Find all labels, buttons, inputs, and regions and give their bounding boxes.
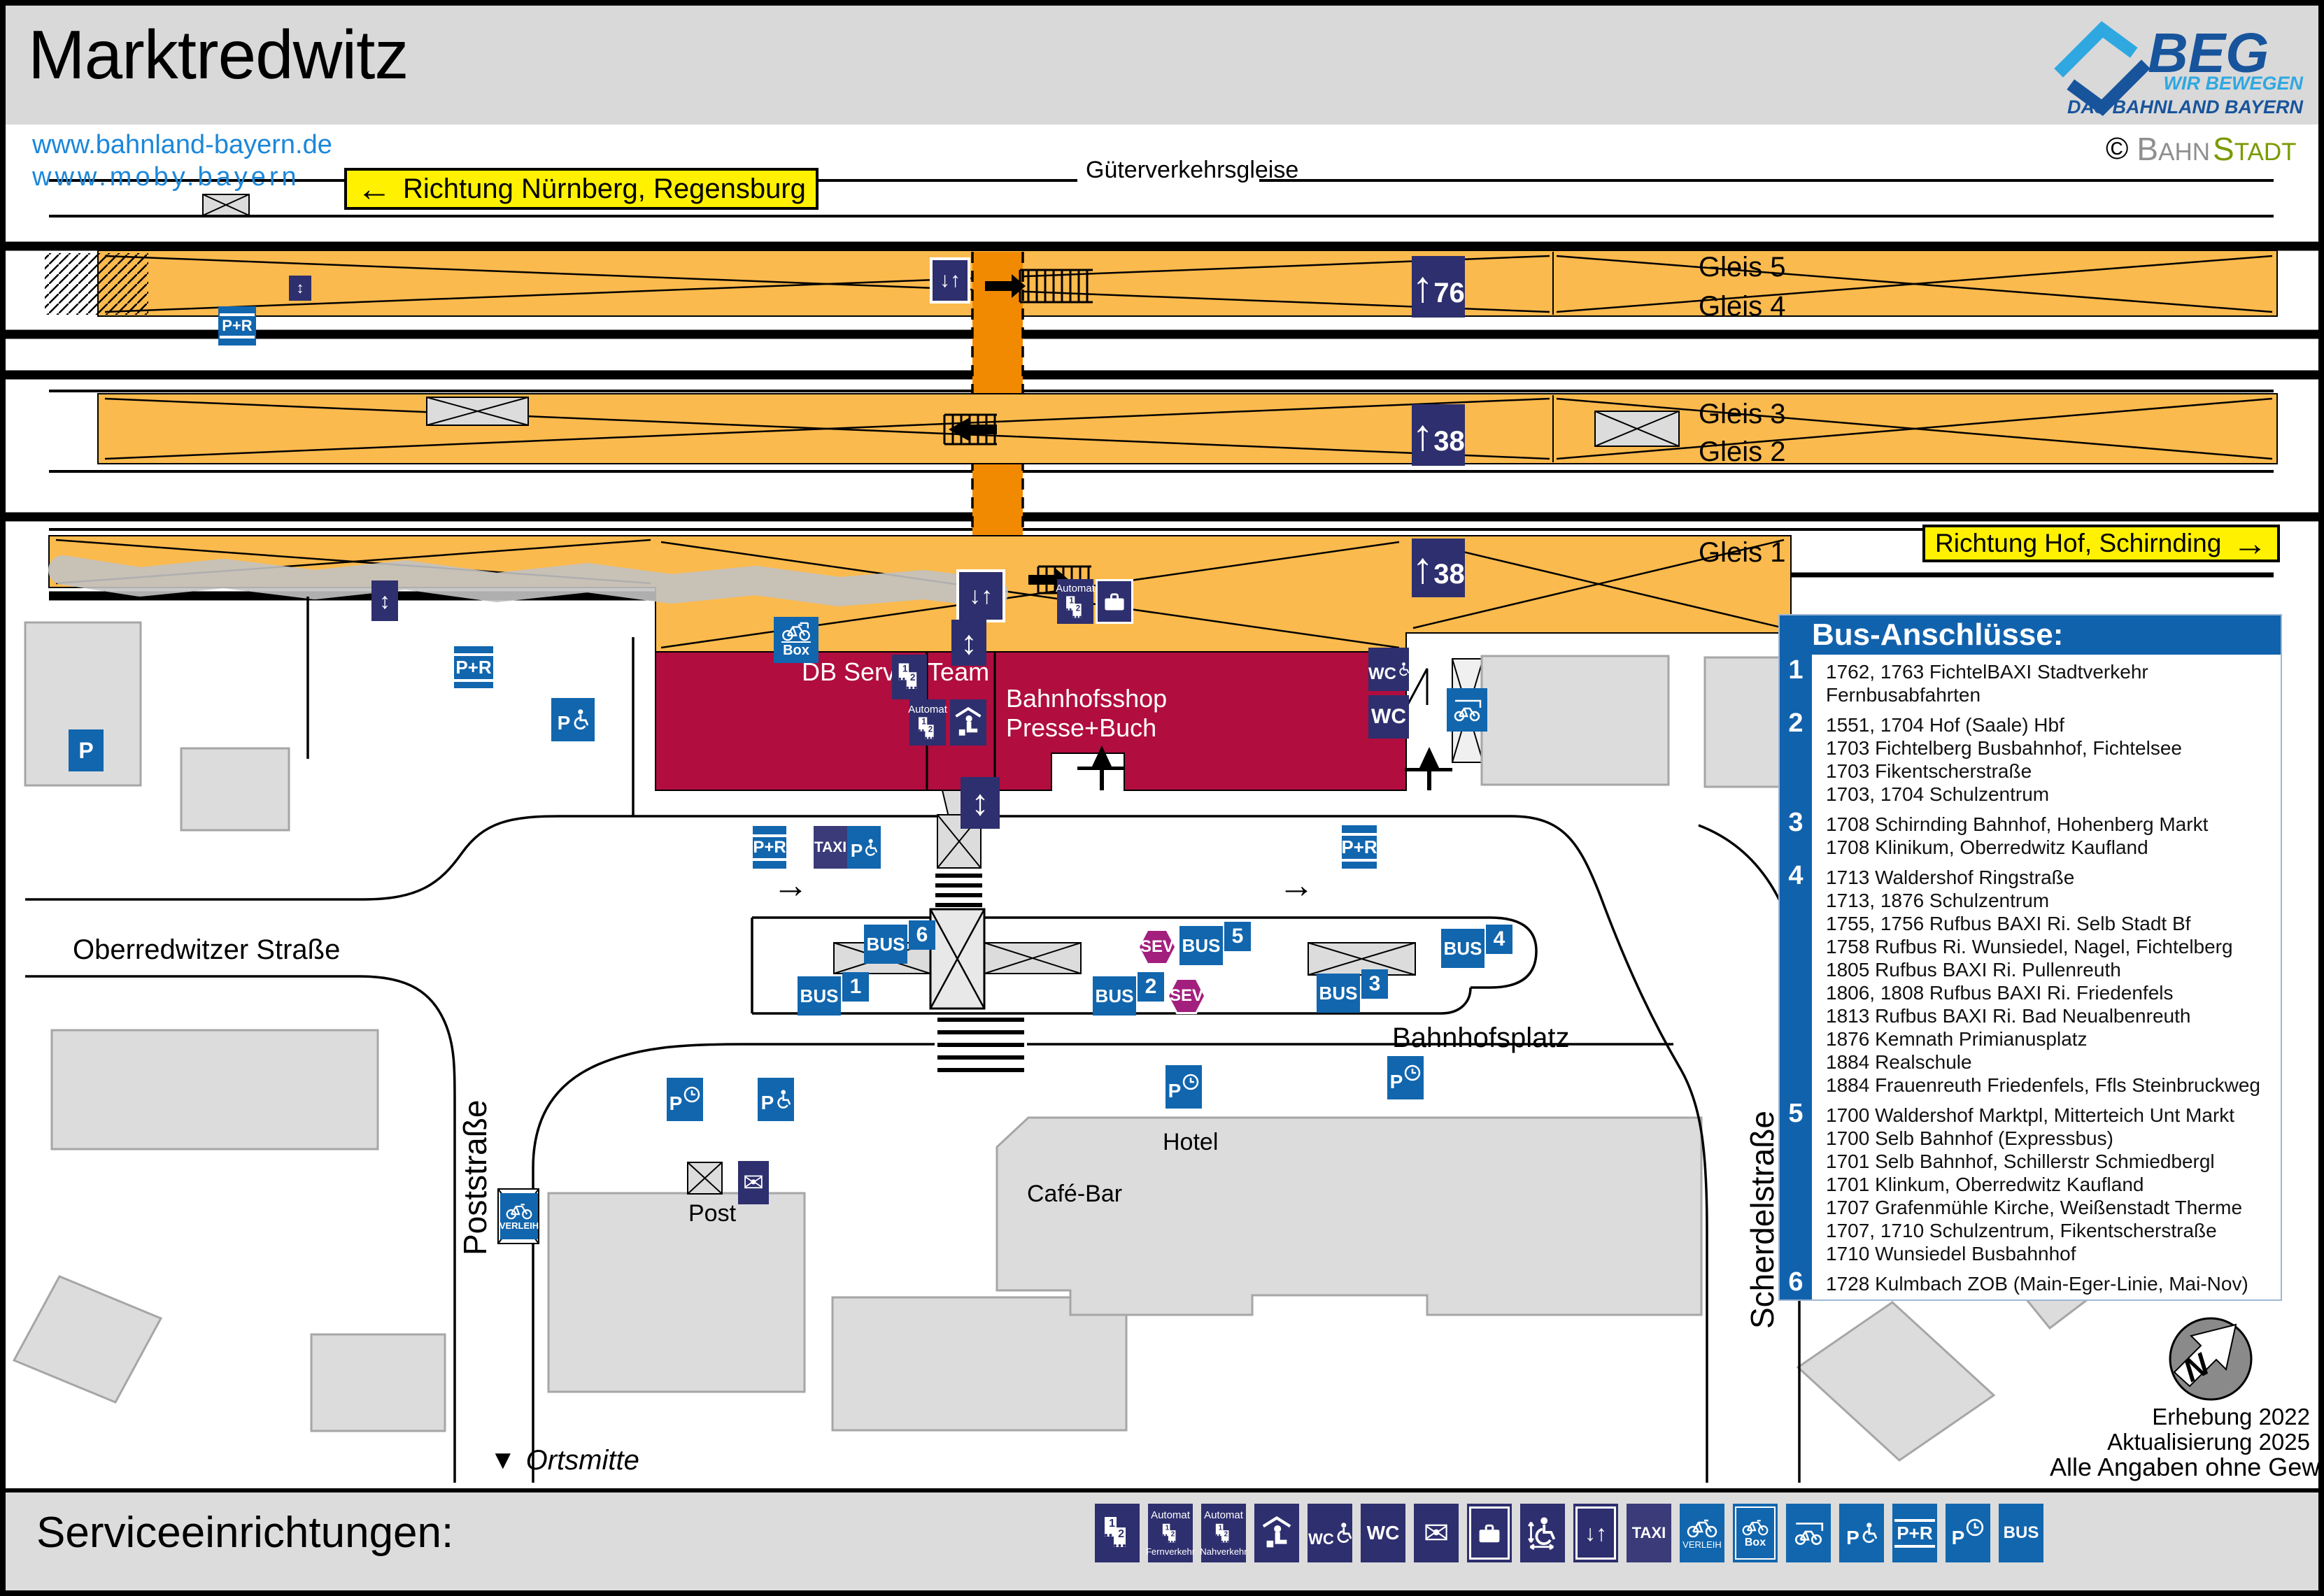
elevator-icon: ↕ bbox=[297, 279, 304, 297]
station-map-page: Marktredwitz BEG WIR BEWEGEN DAS BAHNLAN… bbox=[0, 0, 2324, 1596]
bus-line: 1700 Waldershof Marktpl, Mitterteich Unt… bbox=[1826, 1104, 2281, 1127]
shop-label-1: Bahnhofsshop bbox=[1006, 684, 1167, 713]
pr-sign-west: P+R bbox=[454, 646, 493, 688]
pr-label: P+R bbox=[1339, 833, 1379, 862]
platform-gleis-3-2 bbox=[98, 394, 2277, 464]
stop-number-badge: 5 bbox=[1780, 1102, 1812, 1125]
envelope-icon: ✉ bbox=[743, 1168, 764, 1197]
clock-icon bbox=[1182, 1074, 1199, 1090]
bus-line: 1703 Fichtelberg Busbahnhof, Fichtelsee bbox=[1826, 736, 2281, 760]
p-clock-sign-3: P bbox=[1387, 1056, 1424, 1099]
bus-line: 1551, 1704 Hof (Saale) Hbf bbox=[1826, 713, 2281, 736]
road-arrow-icon: → bbox=[1278, 867, 1315, 904]
wc-sign: WC bbox=[1368, 695, 1409, 739]
length-38: 38 bbox=[1433, 426, 1465, 457]
clock-icon bbox=[1404, 1064, 1421, 1081]
footer-title: Serviceeinrichtungen: bbox=[36, 1508, 453, 1558]
stop-number-badge: 3 bbox=[1780, 811, 1812, 834]
link-bahnland-bayern[interactable]: www.bahnland-bayern.de bbox=[32, 130, 332, 160]
elevator-icon: ↕ bbox=[379, 588, 390, 614]
bus-stop-5-number: 5 bbox=[1224, 922, 1251, 951]
post-sign: ✉ bbox=[738, 1161, 769, 1204]
bike-box-icon: Box bbox=[1733, 1504, 1778, 1562]
bike-box-sign: Box bbox=[774, 617, 819, 663]
mailbox-icon: ✉ bbox=[1414, 1504, 1459, 1562]
elevator-sign-gleis1: ↓↑ bbox=[959, 569, 1002, 622]
triangle-down-icon: ▼ bbox=[490, 1446, 516, 1476]
taxi-icon: TAXI bbox=[1627, 1504, 1671, 1562]
elevator-sign-west-1: ↕ bbox=[371, 580, 398, 621]
bus-panel-title: Bus-Anschlüsse: bbox=[1780, 615, 2281, 655]
stop-number-badge: 2 bbox=[1780, 712, 1812, 735]
bus-line: 1703 Fikentscherstraße bbox=[1826, 760, 2281, 783]
locker-sign-platform bbox=[1098, 579, 1131, 624]
gleis4-label: Gleis 4 bbox=[1699, 291, 1786, 322]
shelter-west bbox=[427, 397, 528, 425]
ortsmitte-marker: ▼ Ortsmitte bbox=[490, 1445, 639, 1476]
automat-label: Automat bbox=[908, 704, 947, 715]
bus-icon: BUS bbox=[1999, 1504, 2043, 1562]
elevator-icon: ↓↑ bbox=[940, 269, 961, 292]
pr-sign-center: P+R bbox=[753, 826, 786, 869]
length-38: 38 bbox=[1433, 559, 1465, 590]
bus-line: 1813 Rufbus BAXI Ri. Bad Neualbenreuth bbox=[1826, 1004, 2281, 1027]
p-accessible-sign-south: P bbox=[758, 1078, 794, 1121]
bahnstadt-credit: © BAHNSTADT bbox=[2106, 130, 2297, 168]
ticket-machine-regional-icon: Automat 12 Nahverkehr bbox=[1201, 1504, 1246, 1562]
bus-connections-panel: Bus-Anschlüsse: 1 1762, 1763 FichtelBAXI… bbox=[1778, 614, 2282, 1301]
pr-label: P+R bbox=[751, 834, 788, 861]
post-label: Post bbox=[688, 1200, 736, 1227]
p-sign-west-lot: P bbox=[69, 729, 104, 771]
bike-rental-icon: VERLEIH bbox=[1680, 1504, 1724, 1562]
parking-time-icon: P bbox=[1946, 1504, 1990, 1562]
entrance-marker-2 bbox=[1405, 747, 1452, 790]
bus-line: 1701 Selb Bahnhof, Schillerstr Schmiedbe… bbox=[1826, 1150, 2281, 1173]
bus-line: 1884 Frauenreuth Friedenfels, Ffls Stein… bbox=[1826, 1074, 2281, 1097]
wheelchair-icon bbox=[863, 838, 877, 857]
bus-line: 1755, 1756 Rufbus BAXI Ri. Selb Stadt Bf bbox=[1826, 912, 2281, 935]
bus-line: 1713, 1876 Schulzentrum bbox=[1826, 889, 2281, 912]
p-accessible-sign-west: P bbox=[551, 698, 595, 741]
locker-icon bbox=[1103, 591, 1126, 612]
bus-stop-3: BUS bbox=[1317, 974, 1360, 1013]
waiting-room-sign bbox=[950, 699, 986, 746]
taxi-label: TAXI bbox=[814, 839, 846, 856]
bus-line: 1805 Rufbus BAXI Ri. Pullenreuth bbox=[1826, 958, 2281, 981]
survey-notes: Erhebung 2022 Aktualisierung 2025 Alle A… bbox=[2050, 1404, 2310, 1480]
p-label: P bbox=[78, 738, 93, 764]
bus-group-1: 1 1762, 1763 FichtelBAXI Stadtverkehr Fe… bbox=[1780, 660, 2281, 706]
platform-gleis-5-4 bbox=[45, 250, 2277, 316]
bus-stop-1: BUS bbox=[798, 976, 841, 1016]
pr-sign-north: P+R bbox=[218, 306, 256, 345]
stop-number-badge: 4 bbox=[1780, 864, 1812, 888]
shelter-east bbox=[1595, 411, 1679, 446]
bus-stop-2-number: 2 bbox=[1138, 972, 1164, 1002]
platform-length-sign-38a: ↑ 38 bbox=[1412, 404, 1465, 466]
gleis3-label: Gleis 3 bbox=[1699, 399, 1786, 430]
platform-length-sign-38b: ↑ 38 bbox=[1412, 539, 1465, 597]
bahnstadt-stadt-rest: TADT bbox=[2234, 138, 2297, 166]
arrow-up-icon: ↑ bbox=[1412, 543, 1433, 593]
wc-accessible-icon: WC bbox=[1308, 1504, 1352, 1562]
pr-label: P+R bbox=[453, 653, 493, 682]
mobility-service-icon bbox=[1520, 1504, 1565, 1562]
road-arrow-icon: → bbox=[772, 867, 809, 904]
platform-length-sign-76: ↑ 76 bbox=[1412, 256, 1465, 318]
p-label: P bbox=[761, 1092, 774, 1114]
bus-stop-5: BUS bbox=[1179, 926, 1223, 965]
p-accessible-sign-center: P bbox=[847, 826, 881, 869]
direction-sign-east: Richtung Hof, Schirnding → bbox=[1922, 525, 2280, 562]
bus-line: 1707, 1710 Schulzentrum, Fikentscherstra… bbox=[1826, 1219, 2281, 1242]
p-label: P bbox=[851, 840, 863, 862]
bus-line: 1876 Kemnath Primianusplatz bbox=[1826, 1027, 2281, 1050]
arrow-up-icon: ↑ bbox=[1412, 262, 1433, 312]
taxi-sign: TAXI bbox=[814, 826, 847, 869]
link-moby-bayern[interactable]: www.moby.bayern bbox=[32, 162, 300, 192]
p-label: P bbox=[558, 712, 571, 734]
bike-parking-icon bbox=[1451, 698, 1483, 722]
goods-shed bbox=[203, 194, 249, 215]
bike-rental-sign: VERLEIH bbox=[500, 1193, 538, 1239]
bus-line: 1728 Kulmbach ZOB (Main-Eger-Linie, Mai-… bbox=[1826, 1272, 2281, 1295]
bus-line: 1713 Waldershof Ringstraße bbox=[1826, 866, 2281, 889]
bus-line: 1884 Realschule bbox=[1826, 1050, 2281, 1074]
bus-stop-4: BUS bbox=[1441, 929, 1485, 968]
street-poststrasse: Poststraße bbox=[456, 1100, 494, 1255]
bus-stop-6-number: 6 bbox=[909, 920, 935, 950]
elevator-sign-west-54: ↕ bbox=[289, 276, 311, 301]
parking-accessible-icon: P bbox=[1839, 1504, 1884, 1562]
bus-group-2: 2 1551, 1704 Hof (Saale) Hbf 1703 Fichte… bbox=[1780, 713, 2281, 806]
post-structure bbox=[688, 1162, 722, 1194]
bus-line: 1708 Klinikum, Oberredwitz Kaufland bbox=[1826, 836, 2281, 859]
pr-label: P+R bbox=[220, 313, 254, 339]
waiting-room-icon bbox=[953, 706, 984, 739]
p-clock-sign-1: P bbox=[667, 1078, 703, 1121]
elevator-icon: ↕ bbox=[971, 782, 989, 824]
verleih-label: VERLEIH bbox=[499, 1220, 539, 1231]
bahnstadt-bahn-rest: AHN bbox=[2158, 138, 2210, 166]
direction-east-label: Richtung Hof, Schirnding bbox=[1935, 529, 2221, 558]
copyright-icon: © bbox=[2106, 131, 2128, 166]
bike-parking-icon bbox=[1786, 1504, 1831, 1562]
ticket-machine-sign-platform: Automat 12 bbox=[1057, 579, 1093, 624]
beg-tagline-2: DAS BAHNLAND BAYERN bbox=[2067, 97, 2303, 118]
bus-line: 1701 Klinkum, Oberredwitz Kaufland bbox=[1826, 1173, 2281, 1196]
clock-icon bbox=[683, 1086, 700, 1103]
page-title: Marktredwitz bbox=[28, 15, 408, 94]
elevator-icon: ↓↑ bbox=[1573, 1504, 1618, 1562]
bahnstadt-stadt-initial: S bbox=[2213, 131, 2234, 167]
beg-tagline-1: WIR BEWEGEN bbox=[2164, 73, 2304, 94]
bus-group-5: 5 1700 Waldershof Marktpl, Mitterteich U… bbox=[1780, 1104, 2281, 1265]
p-clock-sign-2: P bbox=[1165, 1065, 1202, 1109]
street-scherdelstrasse: Scherdelstraße bbox=[1743, 1111, 1781, 1329]
ticket-counter-sign: 12 bbox=[892, 655, 927, 699]
platform-gleis-1 bbox=[49, 536, 1791, 652]
elevator-sign-building-north: ↕ bbox=[951, 620, 986, 666]
locker-icon bbox=[1467, 1504, 1512, 1562]
bus-group-3: 3 1708 Schirnding Bahnhof, Hohenberg Mar… bbox=[1780, 813, 2281, 859]
wc-icon: WC bbox=[1361, 1504, 1405, 1562]
ticket-counter-icon: 12 bbox=[1095, 1504, 1140, 1562]
box-label: Box bbox=[781, 641, 811, 659]
cafe-label: Café-Bar bbox=[1027, 1181, 1122, 1208]
bus-line: 1703, 1704 Schulzentrum bbox=[1826, 783, 2281, 806]
bus-line: 1707 Grafenmühle Kirche, Weißenstadt The… bbox=[1826, 1196, 2281, 1219]
ticket-machine-sign-building: Automat 12 bbox=[909, 699, 946, 746]
park-and-ride-icon: P+R bbox=[1892, 1504, 1937, 1562]
p-label: P bbox=[1168, 1080, 1182, 1102]
bus-stop-6: BUS bbox=[864, 925, 907, 964]
elevator-icon: ↕ bbox=[961, 624, 977, 662]
ortsmitte-label: Ortsmitte bbox=[526, 1445, 639, 1476]
bus-stop-2: BUS bbox=[1093, 976, 1136, 1016]
stop-number-badge: 1 bbox=[1780, 659, 1812, 682]
arrow-up-icon: ↑ bbox=[1412, 411, 1433, 460]
gleis2-label: Gleis 2 bbox=[1699, 436, 1786, 468]
bus-line: Fernbusabfahrten bbox=[1826, 683, 2281, 706]
bus-group-4: 4 1713 Waldershof Ringstraße 1713, 1876 … bbox=[1780, 866, 2281, 1097]
wc-label: WC bbox=[1371, 705, 1406, 729]
ticket-machine-longdistance-icon: Automat 12 Fernverkehr bbox=[1148, 1504, 1193, 1562]
bike-parking-sign bbox=[1447, 688, 1487, 732]
note-line: Alle Angaben ohne Gewähr! bbox=[2050, 1455, 2310, 1480]
elevator-sign-building-south: ↕ bbox=[961, 777, 1000, 829]
bus-line: 1806, 1808 Rufbus BAXI Ri. Friedenfels bbox=[1826, 981, 2281, 1004]
bus-stop-3-number: 3 bbox=[1361, 969, 1388, 999]
street-oberredwitzer: Oberredwitzer Straße bbox=[73, 934, 340, 966]
gleis1-label: Gleis 1 bbox=[1699, 537, 1786, 569]
footer-legend-icons: 12 Automat 12 Fernverkehr Automat 12 Nah… bbox=[1095, 1504, 2043, 1562]
bike-icon bbox=[781, 622, 812, 641]
bus-line: 1710 Wunsiedel Busbahnhof bbox=[1826, 1242, 2281, 1265]
wheelchair-icon bbox=[775, 1089, 791, 1110]
bahnstadt-bahn-initial: B bbox=[2137, 131, 2158, 167]
wheelchair-icon bbox=[1398, 658, 1409, 681]
note-line: Aktualisierung 2025 bbox=[2050, 1430, 2310, 1455]
bus-line: 1708 Schirnding Bahnhof, Hohenberg Markt bbox=[1826, 813, 2281, 836]
bike-icon bbox=[504, 1202, 534, 1220]
elevator-sign-gleis54: ↓↑ bbox=[933, 257, 968, 304]
bus-line: 1700 Selb Bahnhof (Expressbus) bbox=[1826, 1127, 2281, 1150]
bus-line: 1758 Rufbus Ri. Wunsiedel, Nagel, Fichte… bbox=[1826, 935, 2281, 958]
bus-line: 1762, 1763 FichtelBAXI Stadtverkehr bbox=[1826, 660, 2281, 683]
automat-label: Automat bbox=[1056, 583, 1095, 594]
p-label: P bbox=[1390, 1071, 1403, 1093]
length-76: 76 bbox=[1433, 278, 1465, 309]
p-label: P bbox=[669, 1092, 683, 1115]
stop-number-badge: 6 bbox=[1780, 1271, 1812, 1294]
gleis5-label: Gleis 5 bbox=[1699, 252, 1786, 283]
bahnhofsplatz-label: Bahnhofsplatz bbox=[1392, 1023, 1570, 1054]
bus-stop-4-number: 4 bbox=[1486, 925, 1512, 954]
wc-accessible-sign: WC bbox=[1368, 648, 1409, 691]
bus-group-6: 6 1728 Kulmbach ZOB (Main-Eger-Linie, Ma… bbox=[1780, 1272, 2281, 1295]
hotel-label: Hotel bbox=[1163, 1129, 1218, 1156]
goods-track-label: Güterverkehrsgleise bbox=[1086, 157, 1298, 184]
wc-label: WC bbox=[1368, 664, 1396, 684]
wheelchair-icon bbox=[572, 708, 588, 731]
pr-sign-east: P+R bbox=[1342, 825, 1377, 869]
shop-label-2: Presse+Buch bbox=[1006, 713, 1156, 743]
note-line: Erhebung 2022 bbox=[2050, 1404, 2310, 1430]
bus-stop-1-number: 1 bbox=[842, 972, 869, 1002]
waiting-room-icon bbox=[1254, 1504, 1299, 1562]
direction-sign-west: ← Richtung Nürnberg, Regensburg bbox=[344, 168, 819, 210]
direction-west-label: Richtung Nürnberg, Regensburg bbox=[403, 173, 806, 205]
elevator-icon: ↓↑ bbox=[969, 583, 993, 610]
